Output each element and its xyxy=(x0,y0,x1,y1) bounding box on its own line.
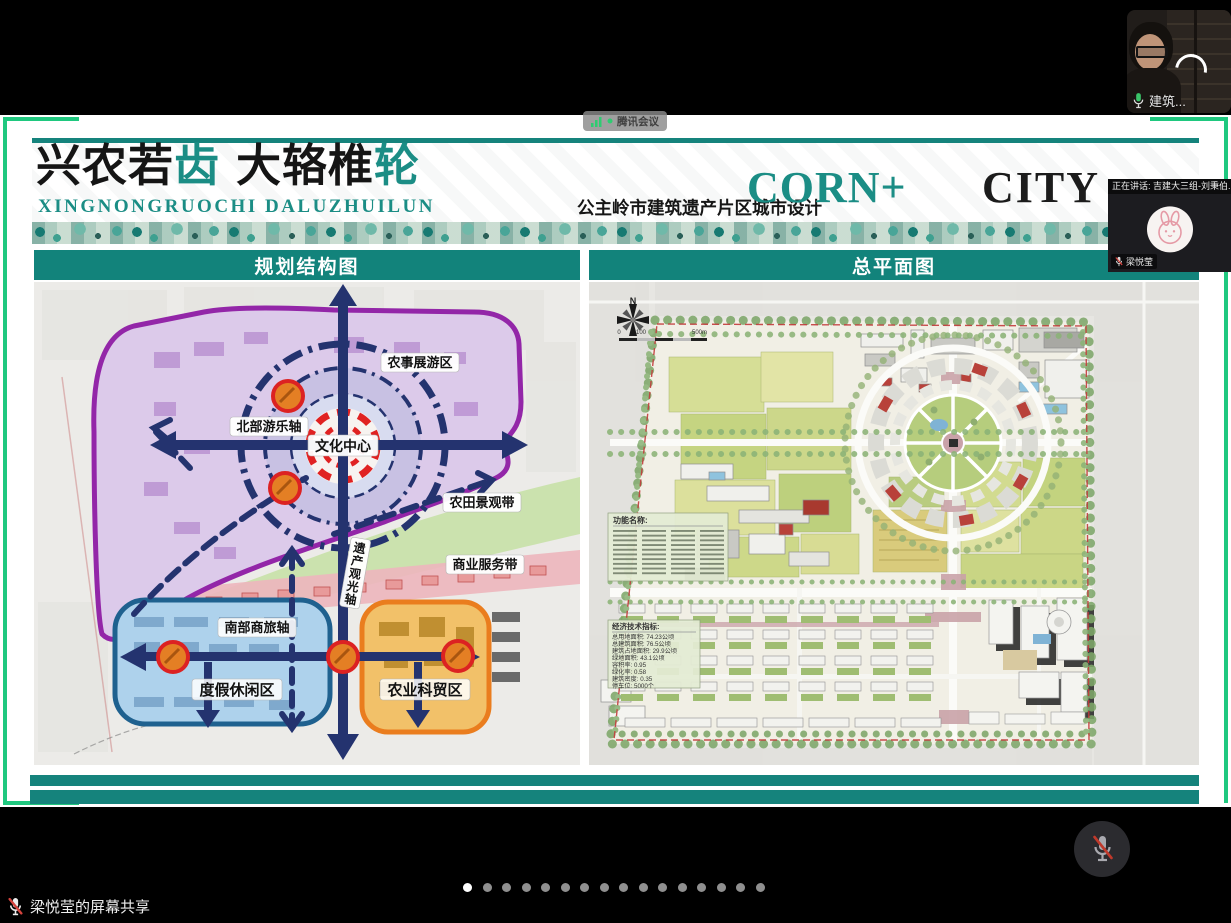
app-badge[interactable]: 腾讯会议 xyxy=(583,111,667,131)
svg-text:绿地面积: 43.1公顷: 绿地面积: 43.1公顷 xyxy=(612,654,665,662)
signal-bars-icon xyxy=(591,116,603,127)
screen-share-bar: 梁悦莹的屏幕共享 xyxy=(8,896,150,917)
svg-text:轴: 轴 xyxy=(343,591,357,608)
label-zone-resort: 度假休闲区 xyxy=(192,679,282,700)
svg-text:文化中心: 文化中心 xyxy=(315,438,371,454)
slide-title-pinyin: XINGNONGRUOCHI DALUZHUILUN xyxy=(38,196,435,218)
participant-video-thumbnail[interactable]: 建筑... xyxy=(1127,10,1231,113)
svg-text:停车位: 5000个: 停车位: 5000个 xyxy=(612,682,654,690)
right-panel-title-text: 总平面图 xyxy=(852,252,936,279)
avatar xyxy=(1147,206,1193,252)
glasses xyxy=(1136,46,1168,58)
svg-text:500m: 500m xyxy=(692,330,707,336)
page-dot[interactable] xyxy=(502,883,511,892)
svg-text:南部商旅轴: 南部商旅轴 xyxy=(224,620,289,635)
page-dot[interactable] xyxy=(619,883,628,892)
svg-text:100: 100 xyxy=(636,330,647,336)
page-dot[interactable] xyxy=(639,883,648,892)
svg-text:建筑占地面积: 29.9公顷: 建筑占地面积: 29.9公顷 xyxy=(612,647,677,655)
svg-text:总用地面积: 74.23公顷: 总用地面积: 74.23公顷 xyxy=(612,633,674,641)
svg-text:农业科贸区: 农业科贸区 xyxy=(386,681,462,699)
slide-footer-bar-1 xyxy=(30,775,1199,786)
page-dot[interactable] xyxy=(600,883,609,892)
status-dot-icon xyxy=(607,118,613,124)
page-dot[interactable] xyxy=(678,883,687,892)
legend-indicator-box: 经济技术指标: 总用地面积: 74.23公顷 总建筑面积: 76.5公顷 建筑占… xyxy=(608,620,700,690)
svg-text:总建筑面积: 76.5公顷: 总建筑面积: 76.5公顷 xyxy=(612,640,671,648)
rabbit-avatar-icon xyxy=(1150,209,1190,249)
label-axis-north: 北部游乐轴 xyxy=(230,417,308,436)
speaker-panel[interactable]: 正在讲话: 吉建大三组-刘秉伯... 梁悦莹 xyxy=(1108,179,1231,272)
farmland-mosaic-strip xyxy=(32,222,1199,244)
pagination-dots xyxy=(463,883,765,892)
slide-footer-bar-2 xyxy=(30,790,1199,804)
label-zone-agritech: 农业科贸区 xyxy=(380,679,470,700)
legend-function-box: 功能名称: xyxy=(608,513,728,581)
label-band-farm: 农田景观带 xyxy=(443,493,521,512)
shared-slide: 兴农若齿大辂椎轮 XINGNONGRUOCHI DALUZHUILUN 公主岭市… xyxy=(0,115,1231,807)
speaking-banner: 正在讲话: 吉建大三组-刘秉伯... xyxy=(1108,179,1231,194)
page-dot[interactable] xyxy=(463,883,472,892)
page-dot[interactable] xyxy=(756,883,765,892)
page-dot[interactable] xyxy=(561,883,570,892)
slide-title-cn: 兴农若齿大辂椎轮 xyxy=(36,143,420,188)
master-plan-map: N 0 100 500m 功能名称: xyxy=(589,282,1199,765)
svg-text:容积率: 0.95: 容积率: 0.95 xyxy=(612,661,647,669)
mic-muted-share-icon xyxy=(8,897,23,916)
meeting-app-canvas: { "meeting": { "app_badge_label": "腾讯会议"… xyxy=(0,0,1231,923)
svg-text:度假休闲区: 度假休闲区 xyxy=(199,681,274,699)
title-part: 兴农若 xyxy=(36,140,174,191)
slide-logo-corn: CORN+ xyxy=(747,162,907,213)
page-dot[interactable] xyxy=(541,883,550,892)
left-panel-title-text: 规划结构图 xyxy=(254,252,359,279)
mic-muted-icon xyxy=(1089,833,1116,865)
page-dot[interactable] xyxy=(580,883,589,892)
participant-name: 建筑... xyxy=(1149,91,1186,110)
app-badge-label: 腾讯会议 xyxy=(617,114,659,129)
svg-text:功能名称:: 功能名称: xyxy=(613,515,648,525)
svg-text:绿化率: 0.58: 绿化率: 0.58 xyxy=(612,668,647,676)
planning-structure-map: 农事展游区 北部游乐轴 文化中心 农田景观带 商业服务带 南部商旅轴 度假休闲区… xyxy=(34,282,580,765)
label-zone-top: 农事展游区 xyxy=(381,353,459,372)
title-part: 大辂椎 xyxy=(236,140,374,191)
mic-on-icon xyxy=(1132,92,1145,109)
title-part: 齿 xyxy=(174,140,220,191)
page-dot[interactable] xyxy=(736,883,745,892)
mic-muted-mini-icon xyxy=(1115,256,1123,267)
avatar-name-tag: 梁悦莹 xyxy=(1111,254,1157,269)
screen-share-label: 梁悦莹的屏幕共享 xyxy=(30,896,150,917)
svg-text:建筑密度: 0.35: 建筑密度: 0.35 xyxy=(612,675,653,683)
slide-frame-top-right xyxy=(1150,117,1228,121)
svg-text:商业服务带: 商业服务带 xyxy=(452,557,517,572)
svg-text:北部游乐轴: 北部游乐轴 xyxy=(236,419,301,434)
svg-text:经济技术指标:: 经济技术指标: xyxy=(612,621,660,631)
page-dot[interactable] xyxy=(697,883,706,892)
slide-frame-left xyxy=(3,117,7,803)
page-dot[interactable] xyxy=(717,883,726,892)
slide-frame-top-left xyxy=(3,117,79,121)
label-axis-south: 南部商旅轴 xyxy=(218,618,296,637)
avatar-name: 梁悦莹 xyxy=(1126,255,1153,268)
mute-button[interactable] xyxy=(1074,821,1130,877)
label-band-biz: 商业服务带 xyxy=(446,555,524,574)
svg-text:农田景观带: 农田景观带 xyxy=(448,495,514,510)
left-panel-title: 规划结构图 xyxy=(34,250,580,280)
label-cultural-center: 文化中心 xyxy=(308,435,378,456)
page-dot[interactable] xyxy=(522,883,531,892)
page-dot[interactable] xyxy=(483,883,492,892)
slide-logo-city: CITY xyxy=(982,162,1100,213)
title-part: 轮 xyxy=(374,140,420,191)
svg-text:农事展游区: 农事展游区 xyxy=(386,355,452,370)
page-dot[interactable] xyxy=(658,883,667,892)
